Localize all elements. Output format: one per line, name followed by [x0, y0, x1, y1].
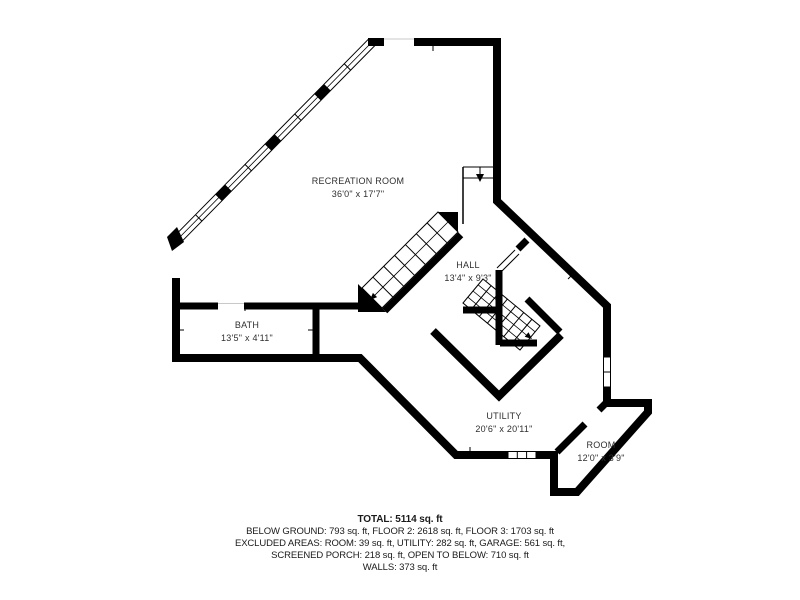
- bath-walls: [173, 303, 366, 358]
- bath-dims: 13'5" x 4'11": [221, 333, 273, 343]
- room-dims: 12'0" x 3'9": [577, 453, 624, 463]
- area-summary: TOTAL: 5114 sq. ft BELOW GROUND: 793 sq.…: [0, 514, 800, 574]
- hall-dims: 13'4" x 9'3": [444, 273, 491, 283]
- stairs-diagonal: [358, 212, 461, 312]
- hall-label: HALL: [456, 260, 480, 270]
- recreation-room-dims: 36'0" x 17'7": [332, 189, 385, 199]
- summary-walls: WALLS: 373 sq. ft: [0, 562, 800, 574]
- window-bottom: [508, 452, 536, 459]
- hall-landing: [463, 167, 497, 224]
- floorplan-page: RECREATION ROOM 36'0" x 17'7" HALL 13'4"…: [0, 0, 800, 600]
- room-label: ROOM: [587, 440, 616, 450]
- window-wall-diagonal: [167, 39, 375, 251]
- utility-label: UTILITY: [486, 411, 521, 421]
- utility-dims: 20'6" x 20'11": [475, 424, 532, 434]
- summary-floors: BELOW GROUND: 793 sq. ft, FLOOR 2: 2618 …: [0, 526, 800, 538]
- floorplan-svg: RECREATION ROOM 36'0" x 17'7" HALL 13'4"…: [0, 0, 800, 600]
- summary-total: TOTAL: 5114 sq. ft: [0, 514, 800, 526]
- window-right: [604, 357, 611, 387]
- summary-excluded-2: SCREENED PORCH: 218 sq. ft, OPEN TO BELO…: [0, 550, 800, 562]
- recreation-room-label: RECREATION ROOM: [312, 176, 405, 186]
- bath-label: BATH: [235, 320, 259, 330]
- wall-ticks: [179, 46, 574, 451]
- hall-door-opening: [497, 240, 527, 272]
- summary-excluded-1: EXCLUDED AREAS: ROOM: 39 sq. ft, UTILITY…: [0, 538, 800, 550]
